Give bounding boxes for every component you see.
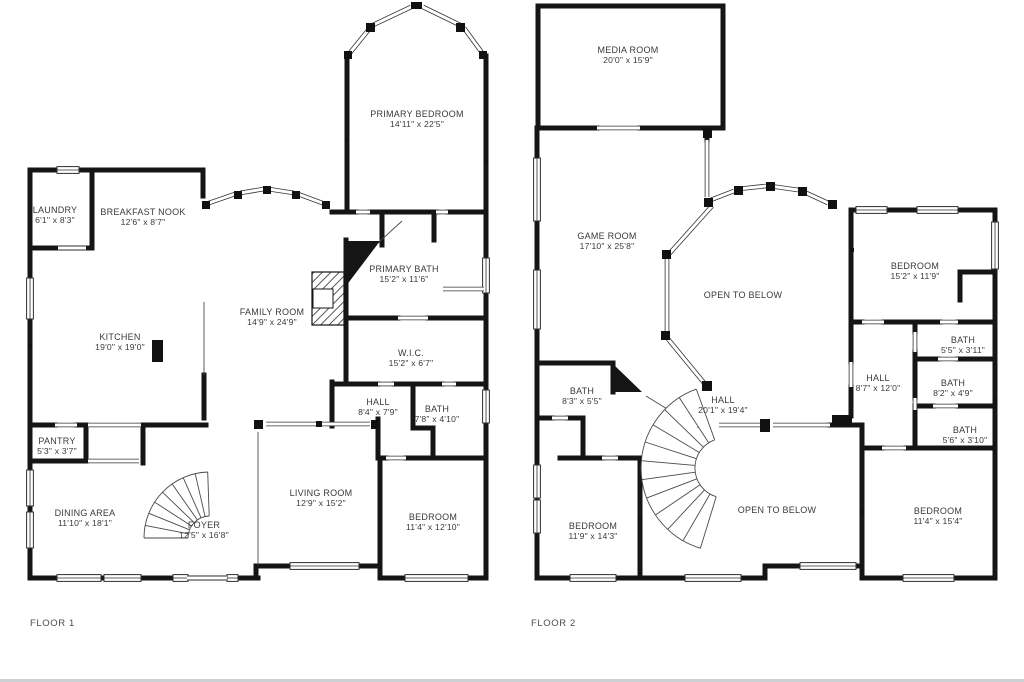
labels-floor-1: LAUNDRY 6'1" x 8'3" BREAKFAST NOOK 12'6"… [33, 109, 464, 540]
room-label-pantry: PANTRY [38, 436, 75, 446]
room-label-laundry: LAUNDRY [33, 205, 78, 215]
room-dims-hall-big: 20'1" x 19'4" [698, 405, 748, 415]
room-dims-bedroom-br: 11'4" x 15'4" [913, 516, 962, 526]
floor-1-caption: FLOOR 1 [30, 618, 75, 629]
room-label-bedroom-br: BEDROOM [914, 506, 962, 516]
room-label-hall-small: HALL [866, 373, 890, 383]
room-dims-living-room: 12'9" x 15'2" [296, 498, 346, 508]
room-label-wic: W.I.C. [398, 348, 424, 358]
floorplan-canvas: LAUNDRY 6'1" x 8'3" BREAKFAST NOOK 12'6"… [0, 0, 1024, 682]
room-dims-bath-b: 8'2" x 4'9" [933, 388, 973, 398]
room-label-primary-bath: PRIMARY BATH [369, 264, 439, 274]
kitchen-island [152, 340, 163, 362]
room-label-dining-area: DINING AREA [55, 508, 116, 518]
room-label-bedroom-bl: BEDROOM [569, 521, 617, 531]
room-label-bath-d: BATH [570, 386, 594, 396]
room-label-media-room: MEDIA ROOM [597, 45, 658, 55]
room-dims-bath-f1: 7'8" x 4'10" [415, 414, 460, 424]
room-dims-media-room: 20'0" x 15'9" [603, 55, 653, 65]
room-dims-breakfast-nook: 12'6" x 8'7" [121, 217, 166, 227]
room-dims-bedroom-f1: 11'4" x 12'10" [406, 522, 460, 532]
room-dims-pantry: 5'3" x 3'7" [37, 446, 77, 456]
room-dims-family-room: 14'9" x 24'9" [247, 317, 297, 327]
room-dims-laundry: 6'1" x 8'3" [35, 215, 75, 225]
room-label-open-to-below-lower: OPEN TO BELOW [738, 505, 817, 515]
room-label-hall-f1: HALL [366, 397, 390, 407]
room-dims-bath-a: 5'5" x 3'11" [941, 345, 985, 355]
labels-floor-2: MEDIA ROOM 20'0" x 15'9" GAME ROOM 17'10… [562, 45, 987, 541]
room-dims-kitchen: 19'0" x 19'0" [95, 342, 145, 352]
room-label-bedroom-tr: BEDROOM [891, 261, 939, 271]
room-dims-bath-c: 5'6" x 3'10" [943, 435, 988, 445]
fireplace [312, 272, 344, 325]
floor-2-caption: FLOOR 2 [531, 618, 576, 629]
room-dims-hall-f1: 8'4" x 7'9" [358, 407, 398, 417]
room-dims-bedroom-bl: 11'9" x 14'3" [568, 531, 617, 541]
room-label-game-room: GAME ROOM [577, 231, 636, 241]
room-dims-hall-small: 8'7" x 12'0" [856, 383, 901, 393]
room-label-bath-c: BATH [953, 425, 977, 435]
room-label-primary-bedroom: PRIMARY BEDROOM [370, 109, 463, 119]
room-label-hall-big: HALL [711, 395, 735, 405]
floorplan-page: LAUNDRY 6'1" x 8'3" BREAKFAST NOOK 12'6"… [0, 0, 1024, 682]
room-dims-bath-d: 8'3" x 5'5" [562, 396, 602, 406]
room-label-family-room: FAMILY ROOM [240, 307, 304, 317]
room-dims-bedroom-tr: 15'2" x 11'9" [890, 271, 939, 281]
room-label-bath-a: BATH [951, 335, 975, 345]
room-dims-primary-bedroom: 14'11" x 22'5" [390, 119, 444, 129]
room-label-kitchen: KITCHEN [99, 332, 140, 342]
room-dims-game-room: 17'10" x 25'8" [580, 241, 635, 251]
room-dims-foyer: 12'5" x 16'8" [179, 530, 229, 540]
room-dims-primary-bath: 15'2" x 11'6" [379, 274, 428, 284]
room-dims-wic: 15'2" x 6'7" [389, 358, 434, 368]
room-label-breakfast-nook: BREAKFAST NOOK [100, 207, 185, 217]
room-label-bath-f1: BATH [425, 404, 449, 414]
room-label-open-to-below-upper: OPEN TO BELOW [704, 290, 783, 300]
room-label-foyer: FOYER [188, 520, 221, 530]
room-dims-dining-area: 11'10" x 18'1" [58, 518, 112, 528]
room-label-living-room: LIVING ROOM [290, 488, 353, 498]
room-label-bedroom-f1: BEDROOM [409, 512, 457, 522]
room-label-bath-b: BATH [941, 378, 965, 388]
